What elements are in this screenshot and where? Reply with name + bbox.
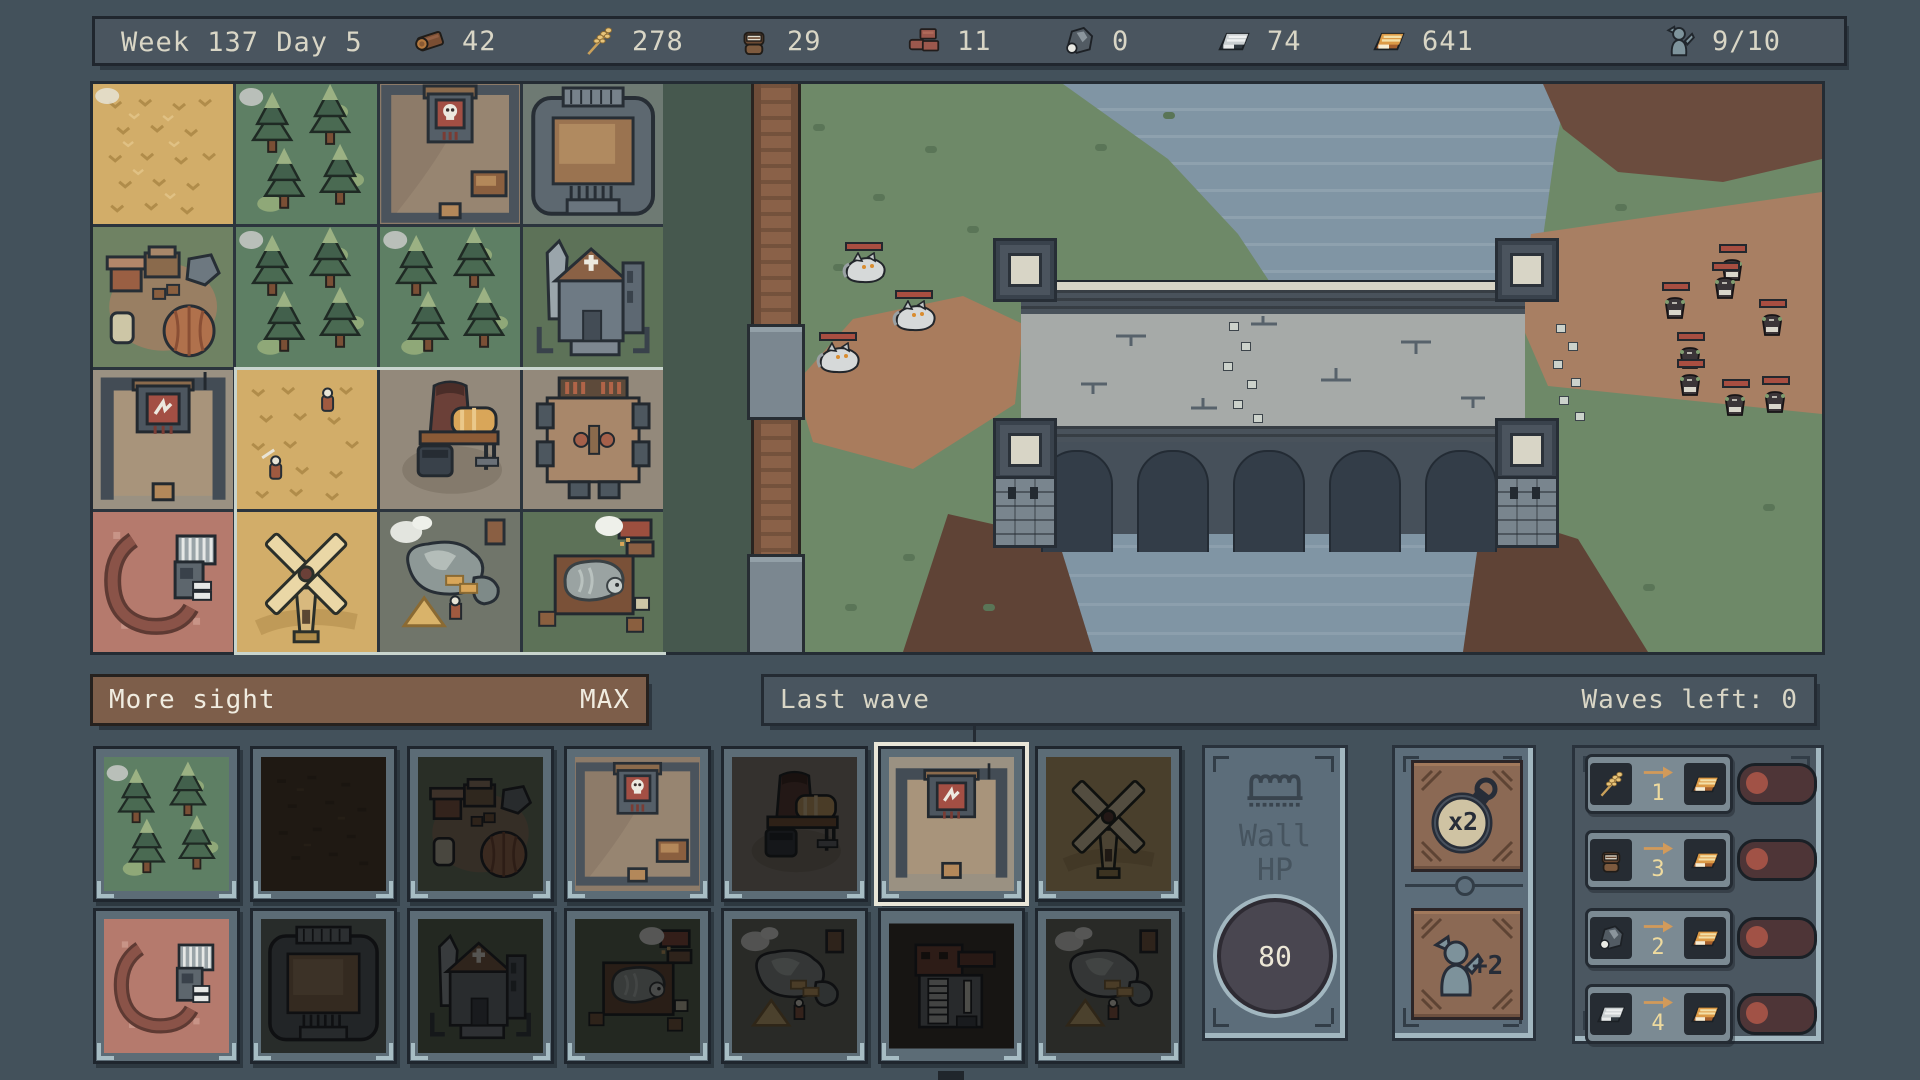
trade-amount: 2 [1651, 938, 1664, 958]
grass-tuft [813, 124, 825, 131]
villager-icon [1660, 22, 1698, 60]
grass-tuft [925, 146, 937, 153]
map-tile-butcher[interactable] [523, 512, 663, 652]
enemy-wolf [841, 252, 889, 286]
build-card-house[interactable] [878, 908, 1025, 1064]
rubble-stone [1559, 396, 1569, 405]
waves-left-label: Waves left: 0 [1582, 685, 1799, 715]
trade-toggle[interactable] [1737, 917, 1817, 959]
bridge-arches [1021, 442, 1525, 534]
grass-tuft [983, 604, 995, 611]
bridge-tower-icon [993, 238, 1057, 302]
population-bonus-label: +2 [1472, 951, 1503, 981]
trade-amount: 1 [1651, 784, 1664, 804]
map-tile-stone-quarry[interactable] [380, 512, 520, 652]
trade-row-ore-to-gold-ingot: 2 [1585, 908, 1811, 962]
grass-tuft [845, 604, 857, 611]
rubble-stone [1553, 360, 1563, 369]
bricks-icon [905, 22, 943, 60]
toggle-knob [1746, 926, 1768, 948]
bridge-arch [1233, 450, 1305, 552]
upgrade-label: More sight [109, 685, 276, 715]
trade-toggle[interactable] [1737, 839, 1817, 881]
trade-recipe: 1 [1585, 754, 1733, 814]
card-art-forest [104, 757, 229, 891]
shadow-strip [663, 84, 751, 652]
build-card-forest[interactable] [93, 746, 240, 902]
bridge-arch [1425, 450, 1497, 552]
enemy-raider [1662, 292, 1688, 322]
population-value: 9/10 [1712, 26, 1781, 57]
card-art-camp [418, 757, 543, 891]
bridge-deck [1021, 314, 1525, 426]
card-art-church [418, 919, 543, 1053]
enemy-wolf [891, 300, 939, 334]
silver-ingot-icon [1590, 993, 1632, 1035]
bridge-tower-icon [993, 418, 1057, 482]
enemy-wolf [815, 342, 863, 376]
rubble-stone [1253, 414, 1263, 423]
wave-label: Last wave [780, 685, 930, 715]
enemy-health-bar [1762, 376, 1790, 385]
card-art-skull-gate [575, 757, 700, 891]
build-card-skull-gate[interactable] [564, 746, 711, 902]
rubble-stone [1571, 378, 1581, 387]
rubble-stone [1241, 342, 1251, 351]
bridge-tower-icon [1495, 418, 1559, 482]
grass-tuft [1763, 504, 1775, 511]
population-bonus-button[interactable]: +2 [1411, 908, 1523, 1020]
wave-status-bar: Last wave Waves left: 0 [764, 677, 1814, 723]
enemy-health-bar [1759, 299, 1787, 308]
ore-icon [1590, 917, 1632, 959]
trade-recipe: 4 [1585, 984, 1733, 1044]
upgrade-bar-more-sight[interactable]: More sight MAX [93, 677, 646, 723]
wave-options-panel: x2 +2 [1392, 745, 1536, 1041]
wall-hp-panel: WallHP 80 [1202, 745, 1348, 1041]
resource-value: 29 [787, 26, 822, 57]
toggle-knob [1746, 1002, 1768, 1024]
trade-conversion: 4 [1634, 995, 1682, 1034]
enemy-health-bar [845, 242, 883, 251]
trade-toggle[interactable] [1737, 993, 1817, 1035]
trade-amount: 3 [1651, 860, 1664, 880]
flour-sack-icon [735, 22, 773, 60]
card-art-windmill [1046, 757, 1171, 891]
enemy-raider [1677, 369, 1703, 399]
bridge-arch [1329, 450, 1401, 552]
card-art-fortress [261, 919, 386, 1053]
trade-row-wheat-to-gold-ingot: 1 [1585, 754, 1811, 808]
trade-recipe: 2 [1585, 908, 1733, 968]
world-map [93, 84, 1822, 652]
bridge-arch [1137, 450, 1209, 552]
bridge-pier [1495, 476, 1559, 548]
resource-wood-log: 42 [410, 21, 497, 61]
resource-top-bar: Week 137 Day 5 422782911074641 9/10 [95, 19, 1844, 63]
gold-ingot-icon [1370, 22, 1408, 60]
wood-log-icon [410, 22, 448, 60]
map-tile-forge[interactable] [380, 370, 520, 510]
wheat-icon [1590, 763, 1632, 805]
enemy-raider [1759, 309, 1785, 339]
build-card-red-quarry[interactable] [93, 908, 240, 1064]
toggle-knob [1746, 772, 1768, 794]
stone-bridge [993, 222, 1553, 552]
trade-toggle[interactable] [1737, 763, 1817, 805]
map-tile-windmill[interactable] [236, 512, 376, 652]
build-card-stone-quarry[interactable] [1035, 908, 1182, 1064]
enemy-health-bar [1677, 332, 1705, 341]
enemy-raider [1762, 386, 1788, 416]
resource-wheat: 278 [580, 21, 684, 61]
map-tile-skull-gate[interactable] [380, 84, 520, 224]
resource-value: 278 [632, 26, 684, 57]
rubble-stone [1233, 400, 1243, 409]
build-card-dirt[interactable] [250, 746, 397, 902]
resource-silver-ingot: 74 [1215, 21, 1302, 61]
grass-tuft [1095, 144, 1107, 151]
deck-cracks [1021, 314, 1525, 426]
grass-tuft [1615, 204, 1627, 211]
map-tile-wheat-field[interactable] [93, 84, 233, 224]
bridge-battlefield [663, 84, 1822, 652]
grass-tuft [903, 554, 915, 561]
panel-divider-knob [1455, 876, 1475, 896]
resource-ore: 0 [1060, 21, 1129, 61]
map-tile-wheat-villagers[interactable] [236, 370, 376, 510]
map-tile-forest[interactable] [380, 227, 520, 367]
population-counter: 9/10 [1660, 21, 1781, 61]
gold-ingot-icon [1684, 917, 1726, 959]
resource-value: 74 [1267, 26, 1302, 57]
flour-sack-icon [1590, 839, 1632, 881]
wall-hp-title: WallHP [1205, 820, 1345, 888]
enemy-raider [1722, 389, 1748, 419]
resource-flour-sack: 29 [735, 21, 822, 61]
build-card-forge[interactable] [721, 746, 868, 902]
trade-recipe: 3 [1585, 830, 1733, 890]
card-art-stone-quarry [732, 919, 857, 1053]
grass-tuft [1163, 112, 1175, 119]
upgrade-status: MAX [580, 685, 630, 715]
trade-row-silver-ingot-to-gold-ingot: 4 [1585, 984, 1811, 1038]
enemy-health-bar [1722, 379, 1750, 388]
build-card-banner-tower[interactable] [878, 746, 1025, 902]
date-label: Week 137 Day 5 [121, 27, 363, 58]
trade-conversion: 2 [1634, 919, 1682, 958]
resource-gold-ingot: 641 [1370, 21, 1474, 61]
crown-icon [1237, 762, 1313, 814]
grass-tuft [967, 226, 979, 233]
build-card-butcher[interactable] [564, 908, 711, 1064]
enemy-health-bar [819, 332, 857, 341]
trade-row-flour-sack-to-gold-ingot: 3 [1585, 830, 1811, 884]
build-card-church[interactable] [407, 908, 554, 1064]
ore-icon [1060, 22, 1098, 60]
toggle-knob [1746, 848, 1768, 870]
bridge-edge-band [1021, 426, 1525, 442]
card-art-house [889, 919, 1014, 1053]
gold-ingot-icon [1684, 993, 1726, 1035]
speed-x2-button[interactable]: x2 [1411, 760, 1523, 872]
enemy-raider [1712, 272, 1738, 302]
map-tile-banner-tower[interactable] [93, 370, 233, 510]
build-card-fortress[interactable] [250, 908, 397, 1064]
trade-panel: 1324 [1572, 745, 1824, 1044]
rubble-stone [1575, 412, 1585, 421]
trade-amount: 4 [1651, 1014, 1664, 1034]
enemy-health-bar [895, 290, 933, 299]
card-art-dirt [261, 757, 386, 891]
resource-bricks: 11 [905, 21, 992, 61]
rubble-stone [1556, 324, 1566, 333]
speed-multiplier-label: x2 [1448, 807, 1478, 836]
stone-wall-segment [747, 324, 805, 420]
bridge-tower-icon [1495, 238, 1559, 302]
map-tile-fortress[interactable] [523, 84, 663, 224]
resource-value: 42 [462, 26, 497, 57]
wall-hp-value-badge: 80 [1217, 898, 1333, 1014]
map-tile-forest[interactable] [236, 84, 376, 224]
bottom-notch [938, 1071, 964, 1080]
rubble-stone [1568, 342, 1578, 351]
rubble-stone [1229, 322, 1239, 331]
resource-value: 641 [1422, 26, 1474, 57]
bridge-edge-band [1021, 290, 1525, 314]
map-tile-forest[interactable] [236, 227, 376, 367]
map-tile-tavern[interactable] [523, 370, 663, 510]
enemy-health-bar [1719, 244, 1747, 253]
bridge-pier [993, 476, 1057, 548]
build-card-camp[interactable] [407, 746, 554, 902]
enemy-health-bar [1662, 282, 1690, 291]
card-art-banner-tower [889, 757, 1014, 891]
card-art-forge [732, 757, 857, 891]
enemy-health-bar [1677, 359, 1705, 368]
wheat-icon [580, 22, 618, 60]
trade-conversion: 1 [1634, 765, 1682, 804]
silver-ingot-icon [1215, 22, 1253, 60]
enemy-health-bar [1712, 262, 1740, 271]
wall-hp-value: 80 [1258, 940, 1292, 973]
stone-wall-segment [747, 554, 805, 652]
card-art-red-quarry [104, 919, 229, 1053]
build-card-stone-quarry[interactable] [721, 908, 868, 1064]
map-tile-red-quarry[interactable] [93, 512, 233, 652]
grass-tuft [873, 194, 885, 201]
build-card-windmill[interactable] [1035, 746, 1182, 902]
trade-conversion: 3 [1634, 841, 1682, 880]
rubble-stone [1247, 380, 1257, 389]
grass-tuft [1643, 584, 1655, 591]
resource-value: 0 [1112, 26, 1129, 57]
kingdom-tile-grid [93, 84, 663, 652]
map-tile-camp[interactable] [93, 227, 233, 367]
wave-card-connector-line [973, 724, 976, 748]
gold-ingot-icon [1684, 763, 1726, 805]
map-tile-church[interactable] [523, 227, 663, 367]
card-art-butcher [575, 919, 700, 1053]
resource-value: 11 [957, 26, 992, 57]
gold-ingot-icon [1684, 839, 1726, 881]
card-art-stone-quarry [1046, 919, 1171, 1053]
rubble-stone [1223, 362, 1233, 371]
